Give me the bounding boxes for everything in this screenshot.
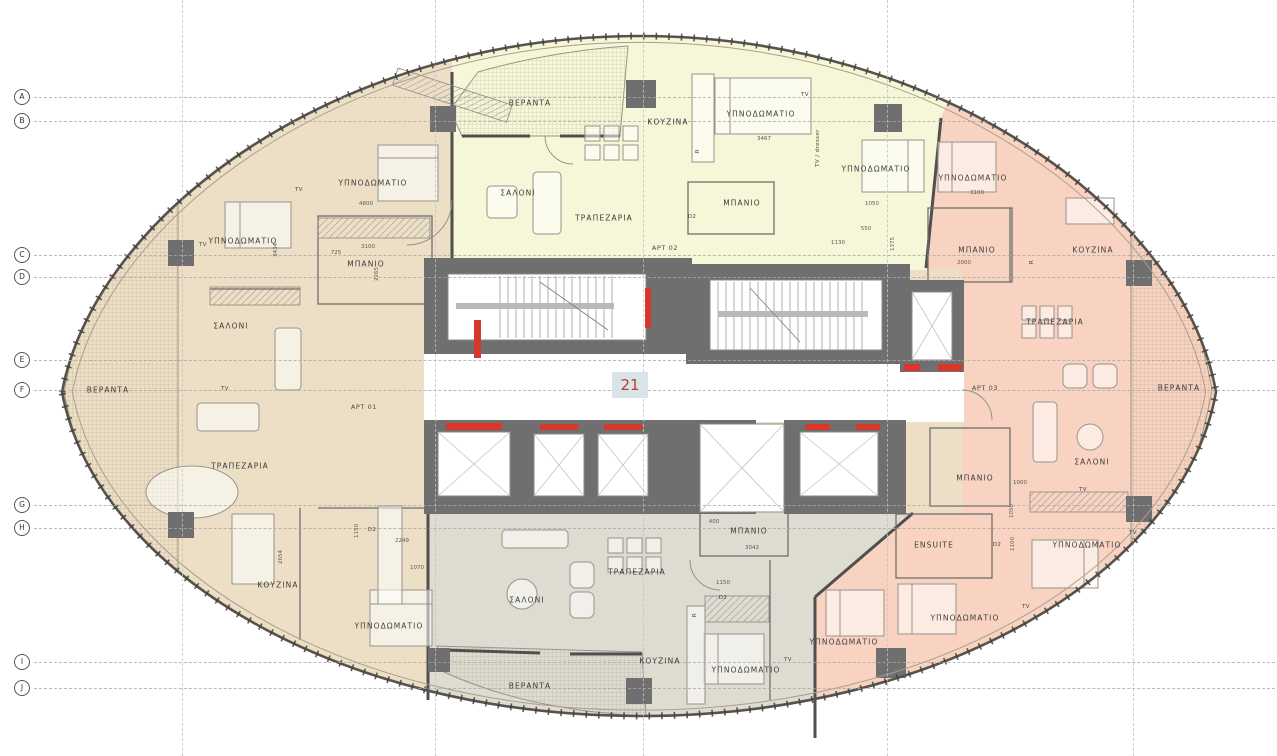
floor-plan-canvas: ABCDEFGHIJ ΥΠΝΟΔΩΜΑΤΙΟΥΠΝΟΔΩΜΑΤΙΟΜΠΑΝΙΟΣ… bbox=[0, 0, 1277, 756]
veranda-west bbox=[64, 192, 178, 590]
floor-number-badge: 21 bbox=[612, 372, 648, 398]
